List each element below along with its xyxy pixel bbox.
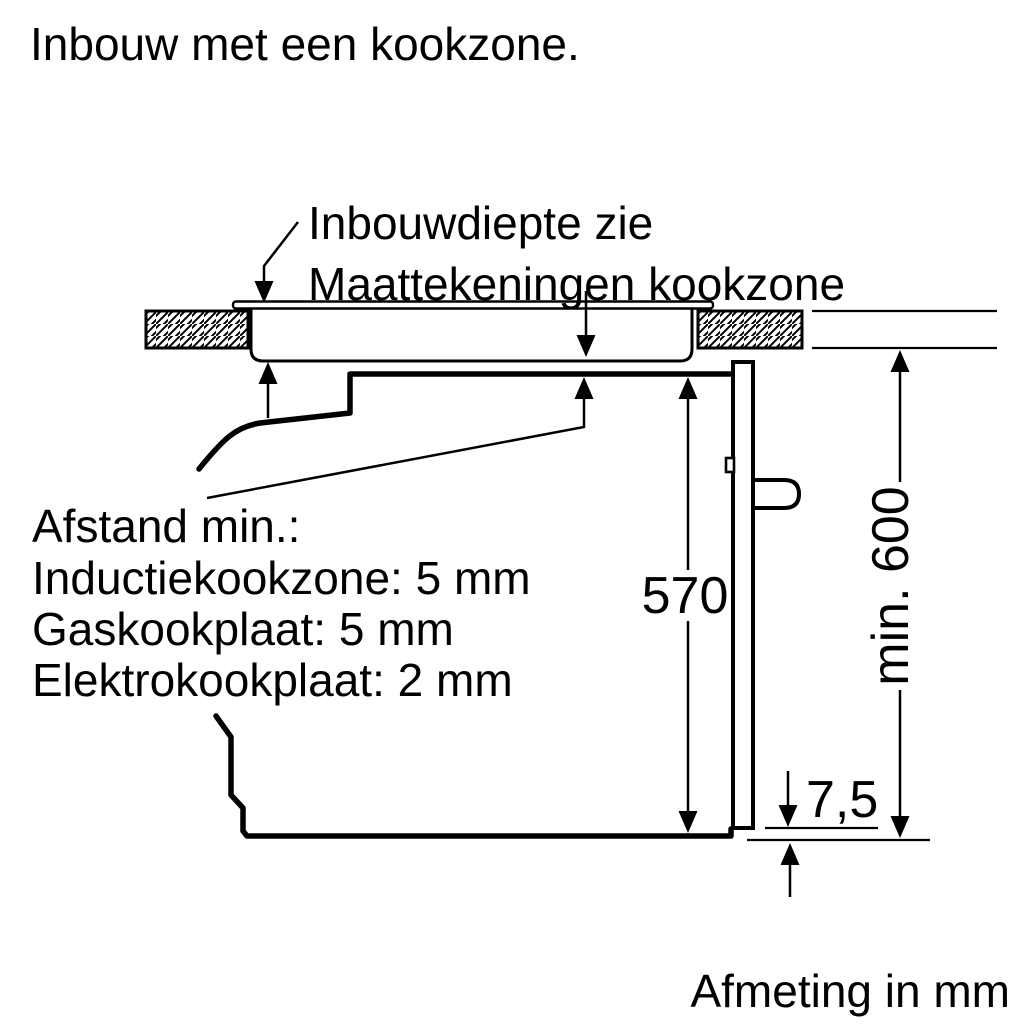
dim-75-down-arrowhead	[779, 805, 798, 827]
worktop-left-section	[146, 311, 248, 348]
depth-callout-line2: Maattekeningen kookzone	[308, 258, 845, 310]
page-title: Inbouw met een kookzone.	[30, 18, 580, 70]
clearance-callout-line4: Elektrokookplaat: 2 mm	[32, 654, 513, 706]
clearance-callout-line1: Afstand min.:	[32, 500, 300, 552]
depth-callout-arrowhead-left	[255, 281, 274, 303]
dim-75-up-arrowhead	[781, 843, 800, 865]
installation-drawing-page: Inbouw met een kookzone. Inbouwdiepte zi…	[0, 0, 1024, 1024]
footer-units-note: Afmeting in mm	[690, 965, 1010, 1017]
dim-570-label: 570	[642, 567, 729, 625]
clearance-callout-line2: Inductiekookzone: 5 mm	[32, 552, 531, 604]
oven-control-knob	[753, 480, 799, 508]
oven-door-front-panel	[733, 362, 753, 828]
oven-installation-diagram: Inbouw met een kookzone. Inbouwdiepte zi…	[0, 0, 1024, 1024]
dim-600-label: min. 600	[862, 486, 920, 685]
dim-600-bottom-arrowhead	[891, 816, 910, 838]
oven-bottom-outline-with-break	[216, 716, 731, 836]
dim-75-label: 7,5	[806, 771, 878, 829]
dim-600-top-arrowhead	[891, 350, 910, 372]
clearance-arrowhead-rear	[575, 377, 594, 399]
clearance-arrowhead-front	[259, 362, 278, 384]
dim-570-bottom-arrowhead	[679, 811, 698, 833]
clearance-leader-line	[207, 398, 584, 498]
depth-callout-leader-left	[264, 222, 298, 283]
depth-callout-line1: Inbouwdiepte zie	[308, 197, 653, 249]
oven-door-hinge-notch	[726, 458, 734, 472]
worktop-right-section	[698, 311, 802, 348]
dim-570-top-arrowhead	[679, 377, 698, 399]
hob-recessed-tub	[251, 306, 692, 361]
clearance-callout-line3: Gaskookplaat: 5 mm	[32, 603, 454, 655]
oven-top-outline-with-break	[199, 374, 731, 469]
